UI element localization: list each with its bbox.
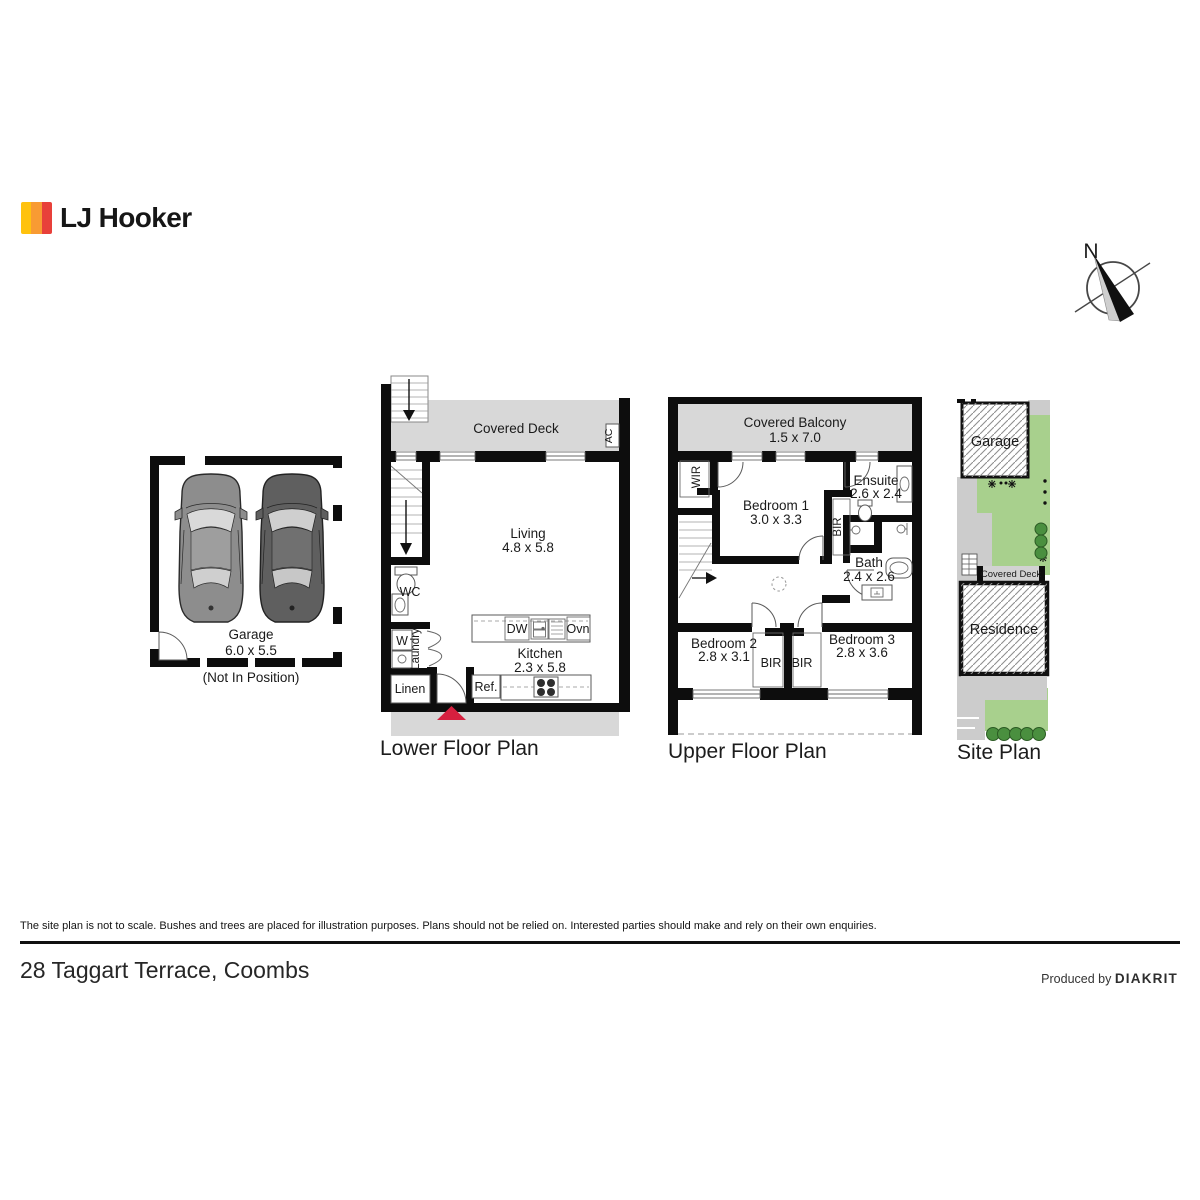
bir-right-label: BIR bbox=[792, 656, 813, 670]
producer-name: DIAKRIT bbox=[1115, 971, 1178, 986]
dishwasher-label: DW bbox=[507, 622, 528, 636]
oven-label: Ovn bbox=[567, 622, 590, 636]
upper-stairs-icon bbox=[679, 515, 717, 600]
entry-door-icon bbox=[437, 674, 466, 703]
garage-dims-label: 6.0 x 5.5 bbox=[225, 643, 277, 658]
balcony-dims-label: 1.5 x 7.0 bbox=[769, 430, 821, 445]
site-plan: Covered Deck Garage Residence bbox=[957, 399, 1050, 741]
site-residence-label: Residence bbox=[970, 622, 1039, 638]
lower-floor-plan: AC bbox=[381, 376, 630, 736]
site-deck-label: Covered Deck bbox=[981, 569, 1041, 580]
bedroom3-dims-label: 2.8 x 3.6 bbox=[836, 645, 888, 660]
linen-label: Linen bbox=[395, 682, 426, 696]
site-steps-icon bbox=[962, 554, 977, 575]
site-bottom-steps bbox=[957, 700, 985, 740]
balcony-label: Covered Balcony bbox=[744, 415, 847, 430]
producer-credit: Produced by DIAKRIT bbox=[1041, 971, 1178, 986]
bifold-door-icon bbox=[427, 631, 442, 666]
ensuite-dims-label: 2.6 x 2.4 bbox=[850, 486, 902, 501]
site-garage-label: Garage bbox=[971, 434, 1019, 450]
garage-note-label: (Not In Position) bbox=[203, 670, 300, 685]
kitchen-dims-label: 2.3 x 5.8 bbox=[514, 660, 566, 675]
compass-north-label: N bbox=[1083, 240, 1098, 263]
living-label: Living bbox=[510, 526, 545, 541]
laundry-label: Laundry bbox=[410, 628, 422, 670]
living-dims-label: 4.8 x 5.8 bbox=[502, 540, 554, 555]
garage-room-label: Garage bbox=[228, 627, 273, 642]
disclaimer-text: The site plan is not to scale. Bushes an… bbox=[20, 920, 877, 932]
bedroom1-dims-label: 3.0 x 3.3 bbox=[750, 512, 802, 527]
washer-label: W bbox=[396, 634, 408, 648]
cooktop-icon bbox=[534, 677, 558, 697]
bedroom2-dims-label: 2.8 x 3.1 bbox=[698, 649, 750, 664]
compass-icon: N bbox=[1075, 240, 1150, 322]
bedroom1-label: Bedroom 1 bbox=[743, 498, 809, 513]
property-address: 28 Taggart Terrace, Coombs bbox=[20, 957, 309, 984]
site-plan-title: Site Plan bbox=[957, 741, 1041, 765]
car-icon bbox=[175, 474, 247, 622]
ac-label: AC bbox=[603, 428, 615, 443]
laundry-sink-icon bbox=[392, 651, 412, 668]
bath-vanity-icon bbox=[862, 585, 892, 600]
internal-stairs-icon bbox=[391, 462, 422, 557]
external-stairs-icon bbox=[391, 376, 428, 422]
bir-left-label: BIR bbox=[761, 656, 782, 670]
fridge-label: Ref. bbox=[475, 680, 498, 694]
bath-dims-label: 2.4 x 2.6 bbox=[843, 569, 895, 584]
covered-deck-label: Covered Deck bbox=[473, 421, 559, 436]
car-icon bbox=[256, 474, 328, 622]
upper-floor-plan: Covered Balcony 1.5 x 7.0 WIR Bedroom 1 … bbox=[668, 397, 922, 735]
site-deck-strip: Covered Deck bbox=[977, 566, 1045, 581]
plans-canvas: N bbox=[0, 0, 1200, 1200]
bir-label: BIR bbox=[832, 517, 844, 536]
floorplan-page: LJ Hooker N bbox=[0, 0, 1200, 1200]
porch-area bbox=[391, 712, 619, 736]
wir-label: WIR bbox=[691, 466, 703, 488]
upper-floor-title: Upper Floor Plan bbox=[668, 740, 827, 764]
produced-by-label: Produced by bbox=[1041, 972, 1111, 986]
bath-label: Bath bbox=[855, 555, 883, 570]
garage-plan: Garage 6.0 x 5.5 (Not In Position) bbox=[150, 456, 342, 685]
kitchen-label: Kitchen bbox=[517, 646, 562, 661]
toilet-icon bbox=[858, 500, 872, 521]
footer-divider bbox=[20, 941, 1180, 944]
garage-door-icon bbox=[159, 632, 187, 660]
wc-label: WC bbox=[400, 585, 421, 599]
ceiling-feature-icon bbox=[772, 577, 786, 591]
lower-floor-title: Lower Floor Plan bbox=[380, 737, 539, 761]
